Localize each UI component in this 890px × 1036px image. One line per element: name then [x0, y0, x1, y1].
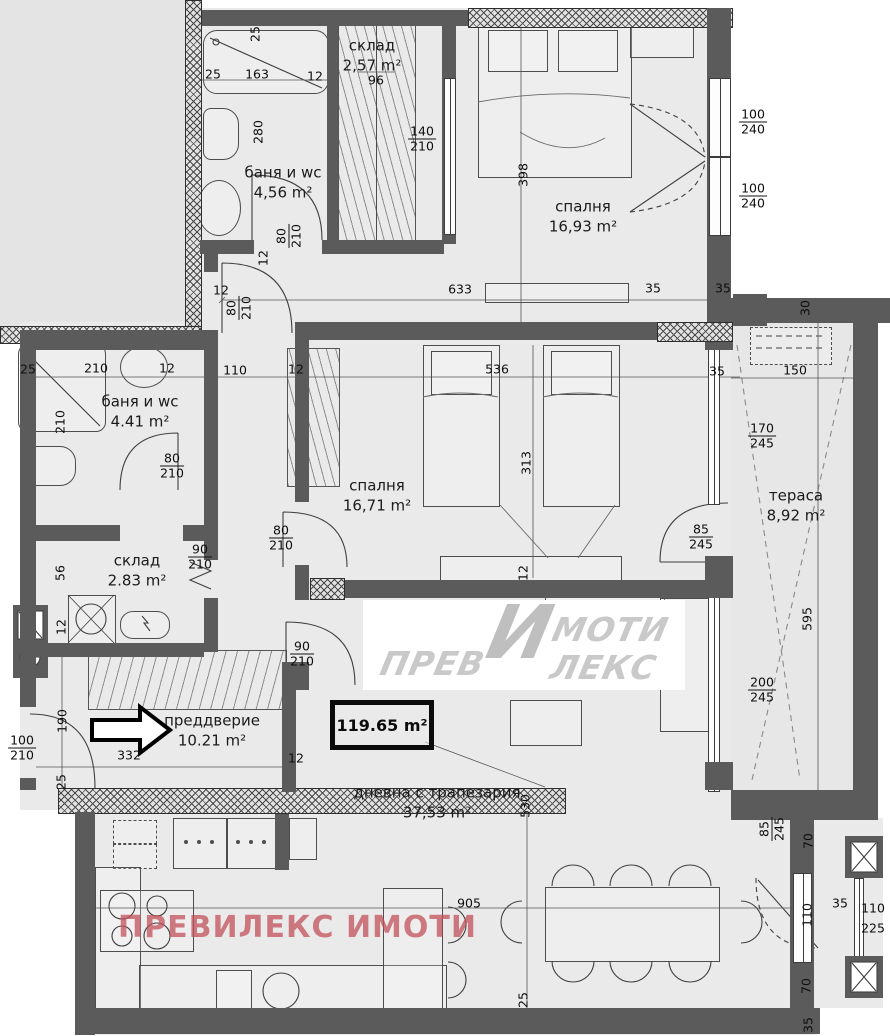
- label-layer: склад 2,57 m² баня и wc 4,56 m² спалня 1…: [0, 0, 890, 1036]
- room-label-terrace: тераса 8,92 m²: [767, 487, 826, 526]
- dim-fraction-label: 100210: [8, 734, 36, 763]
- dim-fraction-label: 140210: [408, 125, 436, 154]
- dim-label: 30: [798, 300, 813, 316]
- dim-label: 150: [783, 363, 807, 378]
- dim-label: 25: [20, 362, 36, 377]
- dim-label: 70: [799, 978, 814, 994]
- dim-fraction-label: 170245: [748, 422, 776, 451]
- room-label-bath1: баня и wc 4,56 m²: [244, 164, 321, 203]
- dim-label: 35: [715, 281, 731, 296]
- dim-fraction-label: 200245: [748, 676, 776, 705]
- dim-label: 25: [248, 26, 263, 42]
- dim-label: 35: [832, 896, 848, 911]
- dim-fraction-label: 80210: [160, 452, 184, 481]
- dim-label: 25: [205, 67, 221, 82]
- dim-label: 530: [518, 794, 533, 818]
- total-area-badge: 119.65 m²: [330, 700, 434, 750]
- agency-logo-watermark: ПРЕВ И МОТИ ЛЕКС: [363, 600, 685, 690]
- dim-fraction-label: 80210: [275, 224, 304, 248]
- dim-label: 110: [861, 901, 885, 916]
- dim-label: 633: [448, 282, 472, 297]
- dim-fraction-label: 80210: [269, 524, 293, 553]
- dim-fraction-label: 80210: [225, 296, 254, 320]
- dim-label: 25: [54, 774, 69, 790]
- logo-text-i: И: [480, 590, 561, 676]
- dim-label: 398: [516, 163, 531, 187]
- dim-label: 25: [516, 992, 531, 1008]
- dim-label: 12: [54, 619, 69, 635]
- dim-label: 210: [84, 361, 108, 376]
- dim-label: 210: [53, 410, 68, 434]
- dim-fraction-label: 100240: [739, 182, 767, 211]
- agency-watermark-footer: ПРЕВИЛЕКС ИМОТИ: [118, 910, 477, 945]
- dim-label: 12: [159, 361, 175, 376]
- room-label-storage2: склад 2.83 m²: [108, 552, 167, 591]
- floor-plan: склад 2,57 m² баня и wc 4,56 m² спалня 1…: [0, 0, 890, 1036]
- dim-fraction-label: 90210: [188, 543, 212, 572]
- dim-fraction-label: 90210: [290, 640, 314, 669]
- room-label-bedroom1: спалня 16,93 m²: [549, 198, 617, 237]
- dim-label: 110: [223, 363, 247, 378]
- dim-label: 536: [485, 362, 509, 377]
- dim-label: 12: [307, 69, 323, 84]
- room-label-bedroom2: спалня 16,71 m²: [343, 477, 411, 516]
- dim-label: 225: [861, 921, 885, 936]
- dim-label: 35: [709, 364, 725, 379]
- dim-label: 12: [516, 565, 531, 581]
- logo-text-leks: ЛЕКС: [547, 648, 660, 687]
- dim-label: 12: [256, 250, 271, 266]
- dim-label: 595: [800, 607, 815, 631]
- dim-label: 190: [55, 709, 70, 733]
- dim-label: 905: [457, 896, 481, 911]
- dim-label: 70: [801, 833, 816, 849]
- dim-label: 35: [645, 281, 661, 296]
- logo-text-moti: МОТИ: [549, 610, 672, 649]
- dim-fraction-label: 100240: [739, 108, 767, 137]
- dim-label: 12: [288, 362, 304, 377]
- dim-label: 56: [53, 565, 68, 581]
- dim-label: 96: [368, 73, 384, 88]
- room-label-hall: преддверие 10.21 m²: [164, 712, 260, 751]
- dim-label: 12: [288, 751, 304, 766]
- dim-label: 332: [117, 748, 141, 763]
- dim-label: 110: [800, 903, 815, 927]
- dim-label: 35: [801, 1017, 816, 1033]
- dim-fraction-label: 85245: [689, 523, 713, 552]
- room-label-storage1: склад 2,57 m²: [343, 37, 402, 76]
- dim-label: 163: [245, 67, 269, 82]
- logo-text-prev: ПРЕВ: [377, 644, 489, 683]
- dim-label: 313: [519, 451, 534, 475]
- room-label-bath2: баня и wc 4.41 m²: [101, 393, 178, 432]
- dim-label: 280: [251, 120, 266, 144]
- room-label-living: дневна с трапезария 37,53 m²: [354, 784, 521, 823]
- dim-fraction-label: 85245: [758, 817, 787, 841]
